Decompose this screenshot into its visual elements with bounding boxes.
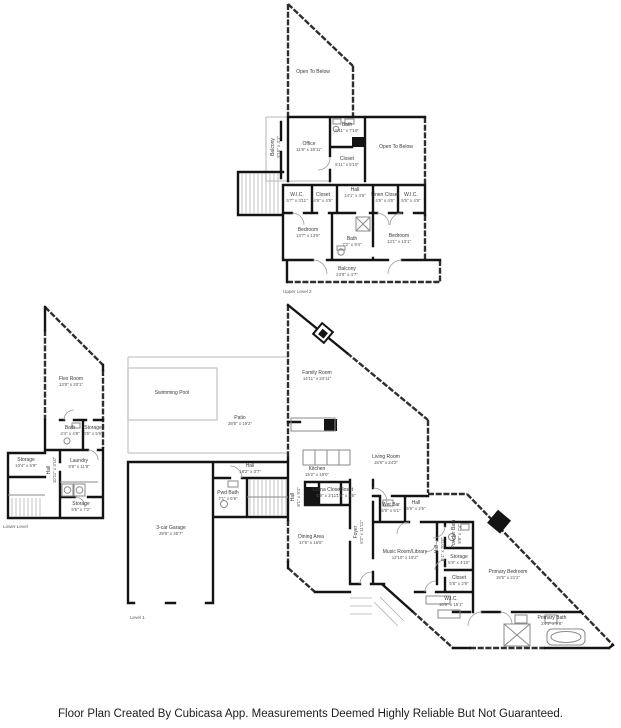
wet-bar-fixtures xyxy=(383,500,393,506)
laundry-fixtures xyxy=(60,482,98,496)
pwd-bath-fixtures xyxy=(221,481,239,508)
main-stairs xyxy=(247,479,288,516)
footer-disclaimer: Floor Plan Created By Cubicasa App. Meas… xyxy=(0,708,621,720)
plan-caption-level-1: Level 1 xyxy=(130,615,145,620)
powder-bath-fixtures xyxy=(449,524,470,541)
plan-caption-lower-level: Lower Level xyxy=(3,524,28,529)
plan-caption-upper-level: Upper Level 2 xyxy=(283,289,312,294)
wic-organizers xyxy=(426,596,460,618)
wall-fill xyxy=(352,137,365,147)
patio-and-pool xyxy=(128,357,288,453)
lower-bath-fixtures xyxy=(64,423,80,444)
upper-stairs xyxy=(242,173,278,214)
lower-stairs xyxy=(8,495,45,517)
floor-plan-page: Open To Below Balcony9'10" x 3'1" Office… xyxy=(0,0,621,728)
floor-plan-drawing xyxy=(0,0,621,728)
primary-bath-fixtures xyxy=(504,615,585,646)
wall-fill xyxy=(306,487,319,504)
main-level-plan xyxy=(128,305,613,648)
kitchen-fixtures xyxy=(291,418,350,465)
entry-porch-steps xyxy=(350,597,404,626)
upper-level-plan xyxy=(238,4,440,282)
lower-level-plan xyxy=(8,307,103,518)
bedroom-wall-fireplace xyxy=(487,510,511,534)
